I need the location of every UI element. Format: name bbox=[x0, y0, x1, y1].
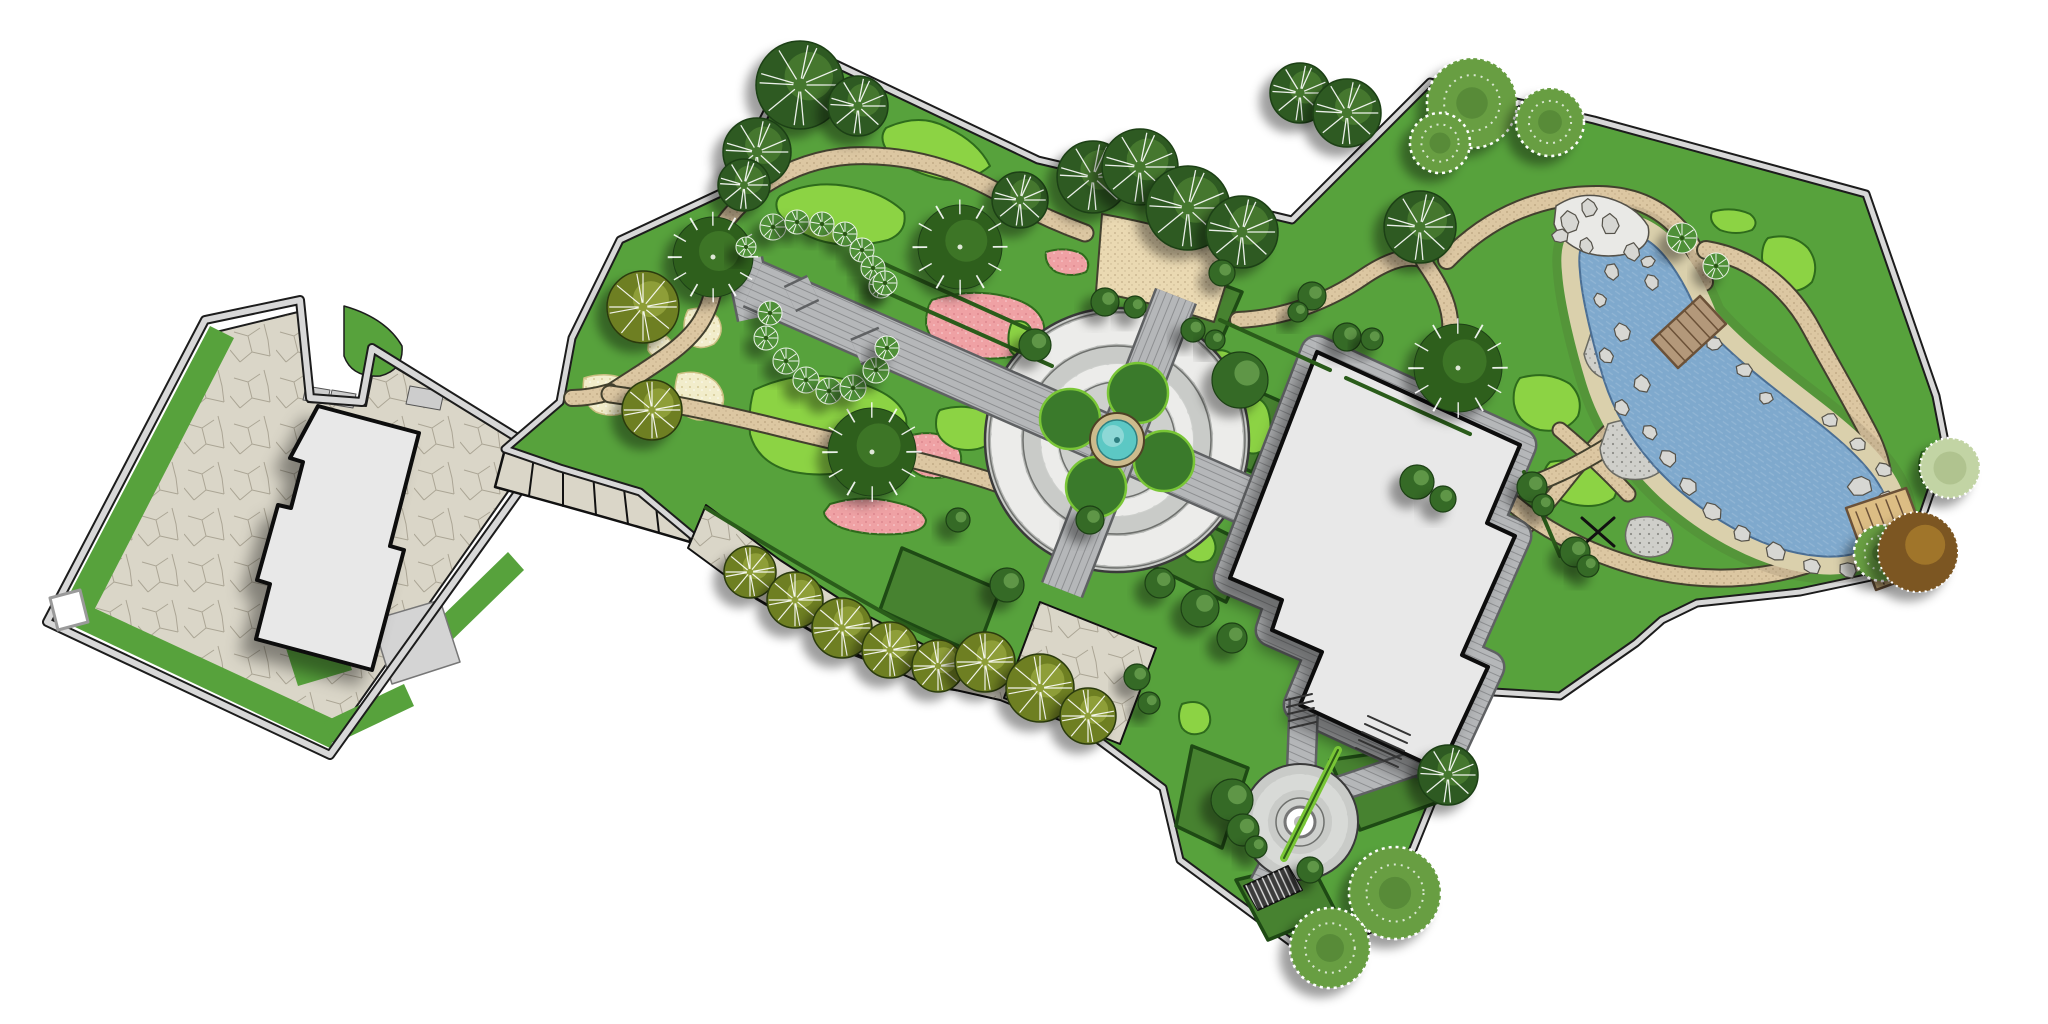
tree-canopy bbox=[804, 378, 808, 382]
tree-canopy bbox=[1440, 490, 1452, 502]
tree-canopy bbox=[870, 450, 875, 455]
tree-shrub bbox=[785, 210, 809, 234]
tree-canopy bbox=[1384, 191, 1456, 263]
tree-fluffy bbox=[1410, 113, 1470, 173]
tree-ball bbox=[1181, 589, 1219, 627]
shrub-mass-b1 bbox=[1179, 702, 1210, 734]
tree-canopy bbox=[1370, 331, 1380, 341]
tree-shrub bbox=[760, 214, 786, 240]
tree-fluffypale bbox=[1920, 438, 1980, 498]
tree-ball bbox=[1124, 296, 1146, 318]
tree-canopy bbox=[828, 76, 888, 136]
boulder bbox=[1822, 414, 1837, 427]
tree-canopy bbox=[1714, 264, 1718, 268]
tree-olive bbox=[607, 271, 679, 343]
tree-canopy bbox=[718, 159, 770, 211]
tree-canopy bbox=[1572, 542, 1586, 556]
landscape-master-plan bbox=[0, 0, 2048, 1024]
tree-canopy bbox=[744, 245, 748, 249]
tree-ball bbox=[1205, 330, 1225, 350]
tree-canopy bbox=[871, 266, 875, 270]
tree-canopy bbox=[795, 220, 799, 224]
tree-canopy bbox=[1133, 299, 1143, 309]
tree-canopy bbox=[1102, 292, 1115, 305]
tree-ball bbox=[1430, 486, 1456, 512]
boulder bbox=[1736, 364, 1752, 377]
shrub-mass-e1 bbox=[1514, 375, 1580, 431]
tree-canopy bbox=[1213, 333, 1222, 342]
tree-canopy bbox=[768, 311, 772, 315]
tree-canopy bbox=[1196, 595, 1213, 612]
site-plan-canvas bbox=[0, 0, 2048, 1024]
tree-olive bbox=[1060, 688, 1116, 744]
tree-ball bbox=[1019, 329, 1051, 361]
tree-ball bbox=[1333, 323, 1361, 351]
boardwalk-bump-n-planks bbox=[790, 288, 813, 299]
tree-ball bbox=[1091, 288, 1119, 316]
tree-canopy bbox=[1934, 452, 1967, 485]
tree-canopy bbox=[1344, 327, 1357, 340]
tree-canopy bbox=[1004, 573, 1019, 588]
tree-canopy bbox=[1228, 785, 1247, 804]
tree-canopy bbox=[1456, 87, 1488, 119]
tree-shrub bbox=[754, 326, 778, 350]
tree-ball bbox=[1297, 857, 1323, 883]
tree-canopy bbox=[958, 245, 963, 250]
tree-canopy bbox=[843, 232, 847, 236]
tree-shrub bbox=[1667, 223, 1697, 253]
tree-fluffy bbox=[1290, 908, 1370, 988]
tree-canopy bbox=[1680, 236, 1684, 240]
tree-canopy bbox=[956, 512, 967, 523]
tree-canopy bbox=[1379, 877, 1411, 909]
tree-canopy bbox=[771, 225, 775, 229]
tree-ball bbox=[1400, 465, 1434, 499]
tree-canopy bbox=[1541, 497, 1551, 507]
tree-ball bbox=[1212, 352, 1268, 408]
tree-canopy bbox=[1316, 934, 1344, 962]
tree-canopy bbox=[1456, 366, 1461, 371]
tree-ball bbox=[1145, 568, 1175, 598]
tree-canopy bbox=[1219, 264, 1231, 276]
tree-ball bbox=[1181, 318, 1205, 342]
fountain-center-jet bbox=[1114, 437, 1120, 443]
tree-canopy bbox=[1134, 668, 1146, 680]
tree-canopy bbox=[784, 359, 788, 363]
tree-canopy bbox=[1905, 525, 1945, 565]
tree-canopy bbox=[1586, 558, 1596, 568]
tree-canopy bbox=[764, 336, 768, 340]
tree-canopy bbox=[1032, 334, 1046, 348]
tree-ball bbox=[1577, 555, 1599, 577]
tree-canopy bbox=[1240, 819, 1254, 833]
tree-ball bbox=[1217, 623, 1247, 653]
tree-shrub bbox=[773, 348, 799, 374]
tree-autumn bbox=[1878, 512, 1958, 592]
tree-canopy bbox=[1443, 339, 1487, 383]
tree-canopy bbox=[860, 248, 864, 252]
tree-ball bbox=[1361, 328, 1383, 350]
tree-canopy bbox=[1254, 839, 1264, 849]
tree-shrub bbox=[1703, 253, 1729, 279]
fountain-water-highlight bbox=[1102, 425, 1124, 447]
tree-shrub bbox=[816, 378, 842, 404]
tree-canopy bbox=[1414, 470, 1429, 485]
tree-ball bbox=[1076, 506, 1104, 534]
tree-ball bbox=[1245, 836, 1267, 858]
tree-shrub bbox=[793, 367, 819, 393]
tree-shrub bbox=[873, 271, 897, 295]
tree-canopy bbox=[1430, 133, 1451, 154]
tree-canopy bbox=[1157, 573, 1171, 587]
tree-canopy bbox=[885, 346, 889, 350]
tree-canopy bbox=[945, 220, 987, 262]
tree-ball bbox=[990, 568, 1024, 602]
shrub-mass-pond1 bbox=[1711, 209, 1756, 233]
tree-canopy bbox=[1191, 322, 1202, 333]
tree-shrub bbox=[758, 301, 782, 325]
tree-canopy bbox=[851, 386, 855, 390]
tree-ball bbox=[1138, 692, 1160, 714]
tree-canopy bbox=[1307, 861, 1319, 873]
tree-canopy bbox=[1206, 196, 1278, 268]
tree-canopy bbox=[992, 172, 1048, 228]
boulder bbox=[1850, 438, 1865, 450]
tree-ball bbox=[1124, 664, 1150, 690]
tree-canopy bbox=[1234, 360, 1259, 385]
tree-canopy bbox=[699, 231, 739, 271]
tree-shrub bbox=[840, 375, 866, 401]
tree-canopy bbox=[1418, 745, 1478, 805]
tree-canopy bbox=[1538, 110, 1562, 134]
tree-shrub bbox=[863, 357, 889, 383]
tree-ball bbox=[1532, 494, 1554, 516]
riprap-3 bbox=[1625, 517, 1673, 557]
tree-canopy bbox=[1296, 305, 1305, 314]
tree-ball bbox=[1288, 302, 1308, 322]
tree-canopy bbox=[820, 222, 824, 226]
tree-canopy bbox=[1087, 510, 1100, 523]
tree-canopy bbox=[857, 423, 901, 467]
tree-canopy bbox=[1147, 695, 1157, 705]
tree-canopy bbox=[827, 389, 831, 393]
tree-shrub bbox=[736, 237, 756, 257]
tree-canopy bbox=[883, 281, 887, 285]
tree-olive bbox=[622, 380, 682, 440]
tree-olive bbox=[862, 622, 918, 678]
left-corner-pad bbox=[50, 590, 88, 630]
tree-shrub bbox=[810, 212, 834, 236]
tree-ball bbox=[946, 508, 970, 532]
tree-ball bbox=[1209, 260, 1235, 286]
tree-canopy bbox=[874, 368, 878, 372]
tree-fluffy bbox=[1516, 88, 1584, 156]
tree-shrub bbox=[875, 336, 899, 360]
tree-canopy bbox=[711, 255, 716, 260]
tree-canopy bbox=[1313, 79, 1381, 147]
tree-canopy bbox=[1229, 628, 1243, 642]
tree-canopy bbox=[1309, 286, 1322, 299]
tree-canopy bbox=[1529, 477, 1543, 491]
